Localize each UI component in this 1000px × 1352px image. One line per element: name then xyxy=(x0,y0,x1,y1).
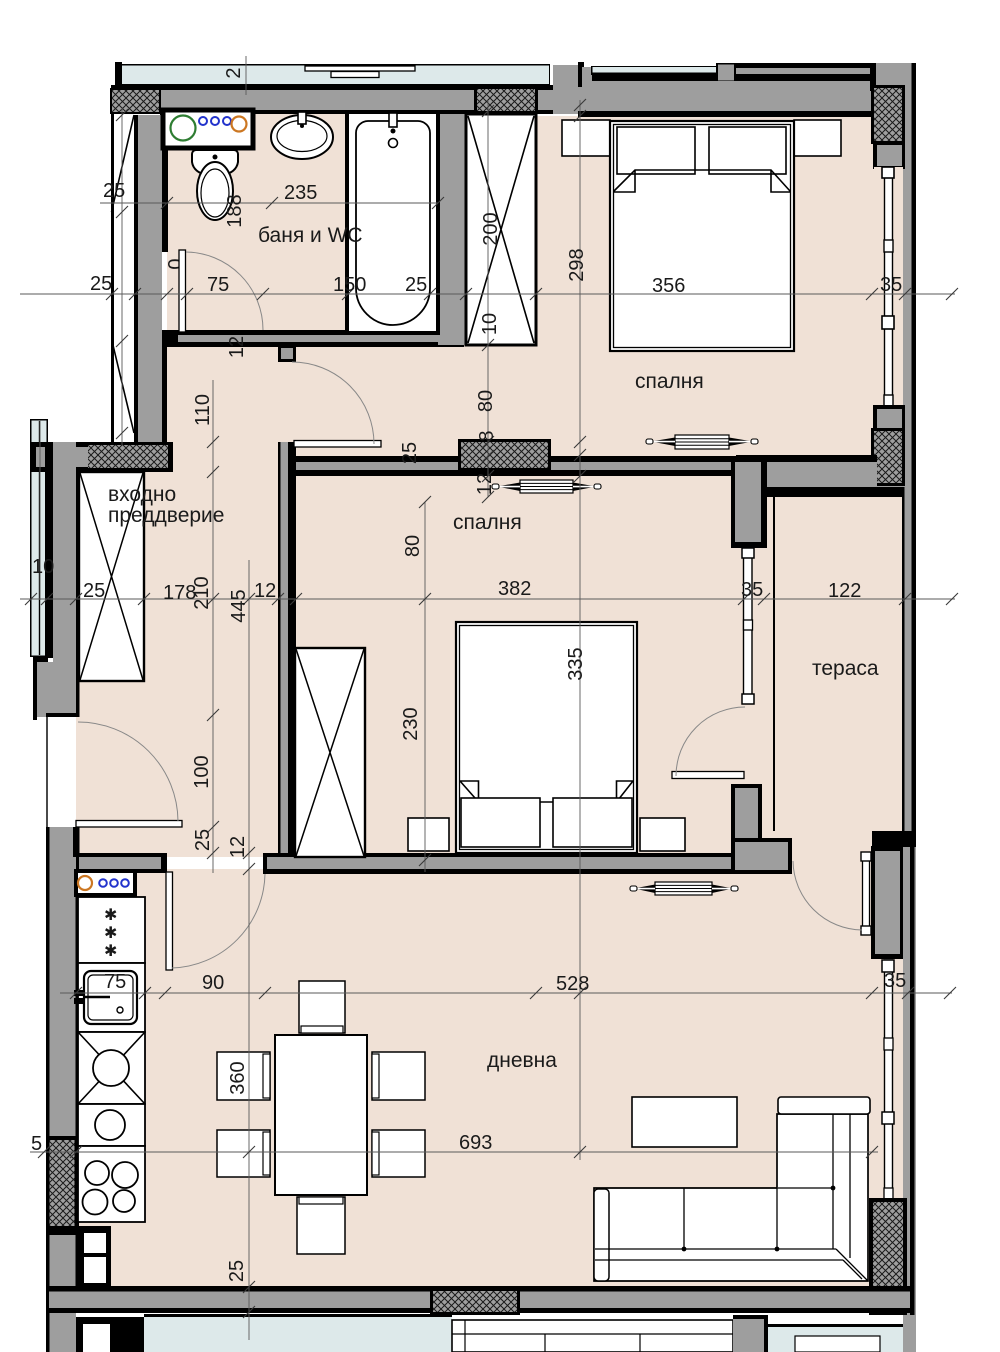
svg-text:✱: ✱ xyxy=(104,907,117,924)
svg-text:входно: входно xyxy=(108,483,176,506)
svg-text:230: 230 xyxy=(400,707,422,740)
svg-text:25: 25 xyxy=(103,180,125,202)
svg-text:12: 12 xyxy=(474,473,496,495)
svg-text:75: 75 xyxy=(104,971,126,993)
svg-text:235: 235 xyxy=(284,182,317,204)
svg-text:210: 210 xyxy=(191,576,213,609)
svg-text:5: 5 xyxy=(31,1133,42,1155)
svg-text:335: 335 xyxy=(565,647,587,680)
svg-text:преддверие: преддверие xyxy=(108,504,224,527)
svg-text:25: 25 xyxy=(405,274,427,296)
svg-text:100: 100 xyxy=(191,755,213,788)
svg-text:25: 25 xyxy=(192,829,214,851)
svg-text:80: 80 xyxy=(402,535,424,557)
svg-text:188: 188 xyxy=(224,194,246,227)
svg-text:25: 25 xyxy=(90,273,112,295)
svg-text:35: 35 xyxy=(741,579,763,601)
svg-text:122: 122 xyxy=(828,580,861,602)
svg-text:80: 80 xyxy=(475,390,497,412)
svg-text:298: 298 xyxy=(566,248,588,281)
svg-text:10: 10 xyxy=(32,556,54,578)
svg-text:баня и WC: баня и WC xyxy=(258,224,363,247)
svg-text:25: 25 xyxy=(399,442,421,464)
svg-text:445: 445 xyxy=(228,589,250,622)
svg-text:150: 150 xyxy=(333,274,366,296)
svg-text:спалня: спалня xyxy=(635,370,704,393)
svg-text:693: 693 xyxy=(459,1132,492,1154)
svg-text:528: 528 xyxy=(556,973,589,995)
svg-text:дневна: дневна xyxy=(487,1049,557,1072)
svg-text:8: 8 xyxy=(476,430,498,441)
svg-text:356: 356 xyxy=(652,275,685,297)
svg-text:тераса: тераса xyxy=(812,657,879,680)
svg-text:10: 10 xyxy=(479,313,501,335)
svg-text:12: 12 xyxy=(254,580,276,602)
svg-text:25: 25 xyxy=(83,580,105,602)
svg-text:90: 90 xyxy=(202,972,224,994)
svg-text:✱: ✱ xyxy=(104,925,117,942)
svg-text:35: 35 xyxy=(880,274,902,296)
svg-text:2: 2 xyxy=(223,67,245,78)
svg-text:75: 75 xyxy=(207,274,229,296)
svg-text:382: 382 xyxy=(498,578,531,600)
svg-text:200: 200 xyxy=(480,212,502,245)
svg-text:12: 12 xyxy=(227,836,249,858)
svg-text:12: 12 xyxy=(226,336,248,358)
svg-text:спалня: спалня xyxy=(453,511,522,534)
svg-text:✱: ✱ xyxy=(104,943,117,960)
svg-text:110: 110 xyxy=(192,394,214,426)
svg-text:25: 25 xyxy=(226,1260,248,1282)
svg-text:35: 35 xyxy=(884,970,906,992)
svg-text:360: 360 xyxy=(227,1061,249,1094)
